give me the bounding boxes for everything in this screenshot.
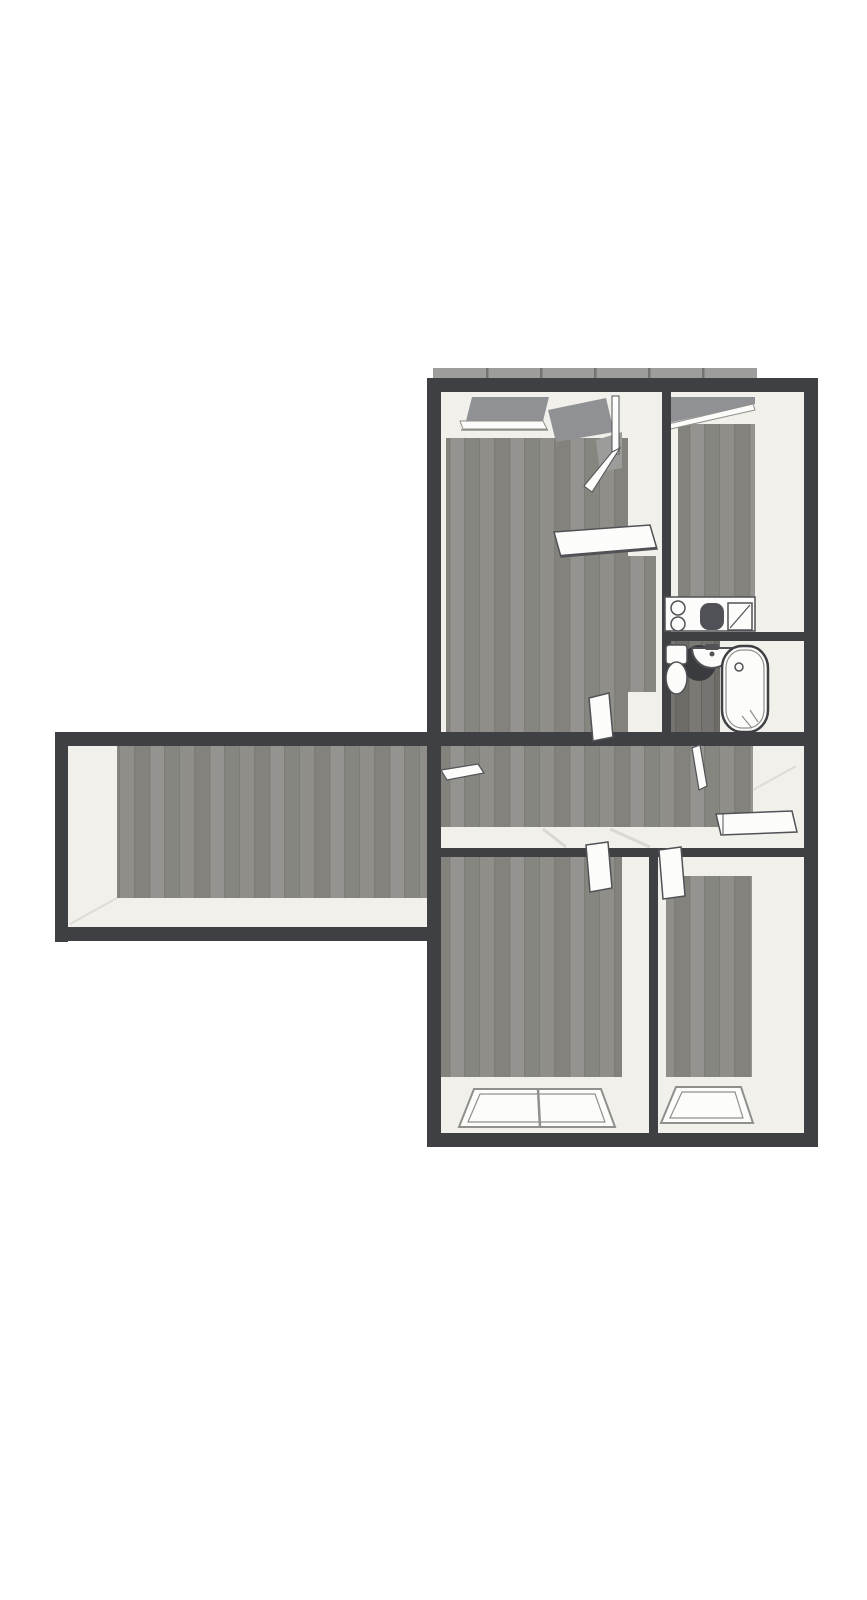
floor-plan-canvas: [0, 0, 867, 1600]
wall-bedroom-divider: [649, 857, 658, 1133]
wall-side-wing-bottom: [55, 927, 441, 941]
bedroom-left-window-frame: [459, 1089, 615, 1127]
washbasin-tap: [705, 644, 719, 650]
bedroom-right-door-leaf: [659, 847, 685, 899]
wall-side-wing-left: [55, 732, 68, 942]
side-wing-floor: [117, 746, 427, 898]
wall-kitchen-bathroom: [662, 632, 804, 641]
living-window-glass: [466, 397, 549, 421]
floor-plan-image: [0, 0, 867, 1600]
wall-main-left: [427, 378, 441, 1147]
room-bedroom-left: [441, 857, 649, 1133]
glass-band-mullion: [540, 368, 543, 379]
glass-band-mullion: [648, 368, 651, 379]
room-living: [441, 392, 662, 733]
living-window-sill: [460, 421, 547, 429]
washbasin-drain: [710, 652, 715, 657]
flat-open-door-panel: [716, 811, 797, 835]
glass-band-mullion: [702, 368, 705, 379]
living-floor: [446, 438, 656, 733]
wall-living-kitchen-divider: [662, 392, 671, 746]
kitchen-fixtures: [665, 597, 755, 631]
wall-hallway-bottom: [441, 848, 804, 857]
kitchen-floor: [678, 424, 755, 597]
wall-main-right: [804, 378, 818, 1147]
living-room-door-leaf: [589, 693, 613, 741]
wall-main-top: [427, 378, 818, 392]
balcony-door-frame: [612, 396, 619, 454]
stove-burner: [671, 601, 685, 615]
glass-band-mullion: [486, 368, 489, 379]
room-kitchen: [664, 392, 804, 632]
bedroom-right-floor: [666, 876, 752, 1077]
toilet-bowl: [666, 662, 687, 694]
toilet-tank: [666, 645, 687, 664]
kitchen-sink-basin: [700, 603, 724, 630]
wall-main-bottom: [427, 1133, 818, 1147]
wall-hallway-top: [55, 732, 804, 746]
stove-burner: [671, 617, 685, 631]
top-facade-glazing: [433, 368, 757, 379]
glass-band-mullion: [594, 368, 597, 379]
bedroom-left-door-leaf: [586, 842, 612, 892]
room-bedroom-right: [658, 857, 804, 1133]
room-side-wing: [68, 746, 427, 927]
